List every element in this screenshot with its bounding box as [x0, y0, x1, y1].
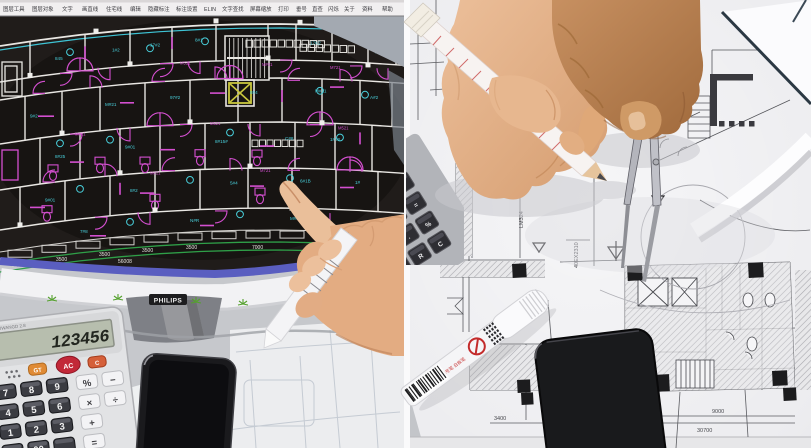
svg-text:3500: 3500 — [186, 245, 197, 251]
svg-text:M721: M721 — [260, 168, 271, 173]
svg-text:直查: 直查 — [312, 5, 323, 13]
svg-text:9#01: 9#01 — [125, 144, 136, 149]
svg-text:17K2: 17K2 — [310, 41, 321, 46]
svg-text:M521: M521 — [180, 60, 191, 65]
svg-text:C#8: C#8 — [285, 136, 294, 141]
svg-text:845: 845 — [55, 56, 63, 61]
svg-text:M721: M721 — [330, 65, 341, 70]
svg-text:M#21: M#21 — [262, 62, 273, 67]
svg-text:M521: M521 — [338, 125, 349, 130]
svg-text:M521: M521 — [210, 121, 221, 126]
svg-text:图层工具: 图层工具 — [3, 5, 25, 13]
svg-text:8#25: 8#25 — [55, 154, 66, 159]
svg-text:隐藏标注: 隐藏标注 — [148, 5, 170, 13]
svg-text:屏幕缩放: 屏幕缩放 — [250, 5, 272, 13]
svg-text:M#21: M#21 — [75, 132, 86, 137]
svg-text:97#2: 97#2 — [170, 95, 181, 100]
svg-text:9#01: 9#01 — [45, 197, 56, 202]
svg-text:AC: AC — [63, 363, 74, 371]
svg-text:7#8: 7#8 — [80, 229, 88, 234]
svg-text:3400: 3400 — [494, 416, 506, 422]
svg-text:6#1B: 6#1B — [300, 178, 311, 183]
svg-text:GT: GT — [33, 368, 42, 375]
svg-text:画直线: 画直线 — [82, 5, 99, 13]
svg-text:资料: 资料 — [362, 5, 373, 13]
svg-text:帮助: 帮助 — [382, 5, 393, 13]
svg-text:M#21: M#21 — [105, 102, 117, 107]
svg-text:8#4: 8#4 — [250, 90, 258, 95]
svg-text:A#2: A#2 — [370, 95, 379, 100]
svg-text:住宅线: 住宅线 — [106, 5, 123, 13]
svg-text:30700: 30700 — [697, 428, 712, 434]
svg-text:M#21: M#21 — [150, 170, 161, 175]
svg-text:8#2: 8#2 — [130, 188, 138, 193]
svg-text:5#4: 5#4 — [230, 181, 238, 186]
svg-text:PHILIPS: PHILIPS — [154, 298, 183, 305]
svg-text:垂号: 垂号 — [296, 6, 307, 13]
svg-text:9#2: 9#2 — [30, 113, 38, 118]
svg-text:1#2: 1#2 — [112, 48, 120, 53]
svg-text:M#21: M#21 — [315, 89, 327, 94]
svg-text:1#: 1# — [355, 180, 361, 185]
svg-text:关于: 关于 — [344, 5, 355, 13]
svg-text:7000: 7000 — [252, 245, 263, 251]
svg-text:N#R: N#R — [190, 218, 200, 223]
svg-text:文字查找: 文字查找 — [222, 5, 244, 13]
svg-text:17#2: 17#2 — [150, 42, 161, 47]
svg-text:3500: 3500 — [99, 252, 110, 258]
svg-text:编辑: 编辑 — [130, 5, 141, 13]
svg-text:00: 00 — [33, 444, 45, 448]
svg-text:图层对象: 图层对象 — [32, 5, 54, 13]
svg-text:ELIN: ELIN — [204, 7, 216, 13]
svg-text:8#1: 8#1 — [195, 38, 203, 43]
svg-text:9000: 9000 — [712, 409, 724, 415]
svg-text:闪烁: 闪烁 — [328, 5, 339, 13]
svg-text:文字: 文字 — [62, 5, 73, 13]
svg-text:3500: 3500 — [142, 248, 153, 254]
svg-text:标注设置: 标注设置 — [176, 5, 198, 13]
svg-text:8#15#: 8#15# — [215, 139, 228, 144]
svg-text:56008: 56008 — [118, 259, 132, 265]
svg-text:打印: 打印 — [278, 5, 289, 13]
svg-text:1#7#: 1#7# — [330, 137, 341, 142]
